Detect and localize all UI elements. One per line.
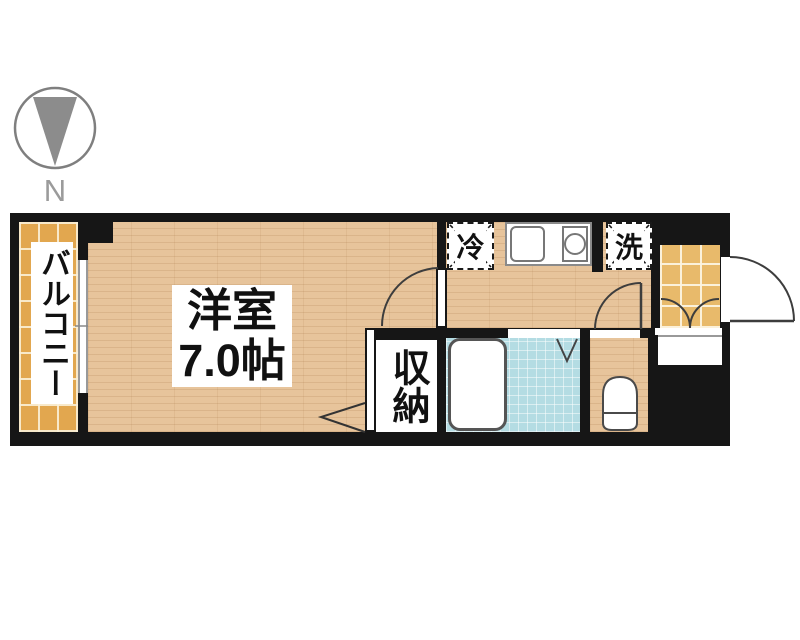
north-arrow-icon: N (8, 84, 104, 209)
balcony-label-box: バルコニー (31, 242, 73, 404)
north-label: N (44, 173, 66, 208)
outer-wall-left (10, 213, 19, 446)
outer-wall-top (10, 213, 730, 222)
main-room-name: 洋室 (187, 286, 277, 336)
closet-label-box: 収納 (376, 340, 437, 432)
shoe-cabinet (658, 335, 722, 365)
room-kitchen-wall (437, 213, 446, 268)
closet-top-wall (366, 328, 437, 340)
bath-door-opening (508, 329, 580, 338)
floor-plan: N 冷 洗 (0, 0, 800, 640)
toilet-room-floor (590, 338, 648, 432)
washer-label: 洗 (614, 226, 644, 266)
bath-toilet-wall (580, 328, 590, 432)
entrance-door-arc-icon (730, 257, 794, 321)
refrigerator-label: 冷 (455, 226, 485, 266)
room-bath-wall (437, 327, 446, 432)
counter-side-wall (592, 213, 603, 272)
closet-door (365, 328, 376, 432)
room-entry-door-leaf (436, 268, 447, 328)
toilet-door-opening (590, 330, 640, 338)
entrance-door-opening (721, 257, 730, 322)
entrance-floor (660, 245, 720, 328)
bathtub-icon (448, 338, 507, 431)
entrance-top-wall (651, 213, 730, 245)
balcony-window (78, 260, 88, 393)
outer-wall-bottom (10, 432, 730, 446)
kitchen-sink-icon (510, 226, 545, 262)
refrigerator-space-box: 冷 (447, 222, 494, 270)
closet-label: 収納 (386, 348, 427, 424)
entrance-step-threshold (655, 328, 722, 335)
stove-burner-icon (562, 226, 588, 262)
balcony-label: バルコニー (36, 248, 68, 398)
main-room-size: 7.0帖 (178, 336, 286, 386)
washing-machine-space-box: 洗 (606, 222, 652, 270)
main-room-label-box: 洋室 7.0帖 (172, 285, 292, 387)
